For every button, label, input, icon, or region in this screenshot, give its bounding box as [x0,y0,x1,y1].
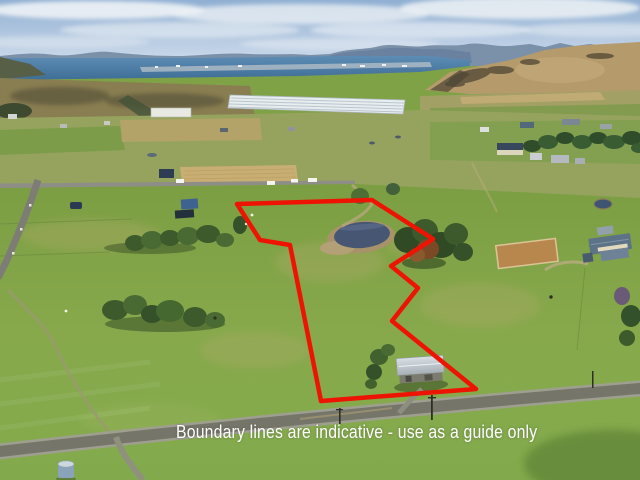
blue-container [181,198,199,209]
left-hills [0,78,255,120]
estate-pond [594,199,612,209]
aerial-photo: Boundary lines are indicative - use as a… [0,0,640,480]
white-shed-distant [151,108,191,117]
water-tank [56,461,76,480]
bay-water [0,56,470,80]
purple-tree [614,287,630,305]
dark-car [70,202,82,209]
dark-container [175,209,195,218]
terrain-art [0,0,640,480]
tilled-field [180,165,298,183]
greenhouse-rows [228,95,405,114]
navy-shed [159,169,174,178]
disclaimer-caption: Boundary lines are indicative - use as a… [176,421,537,443]
